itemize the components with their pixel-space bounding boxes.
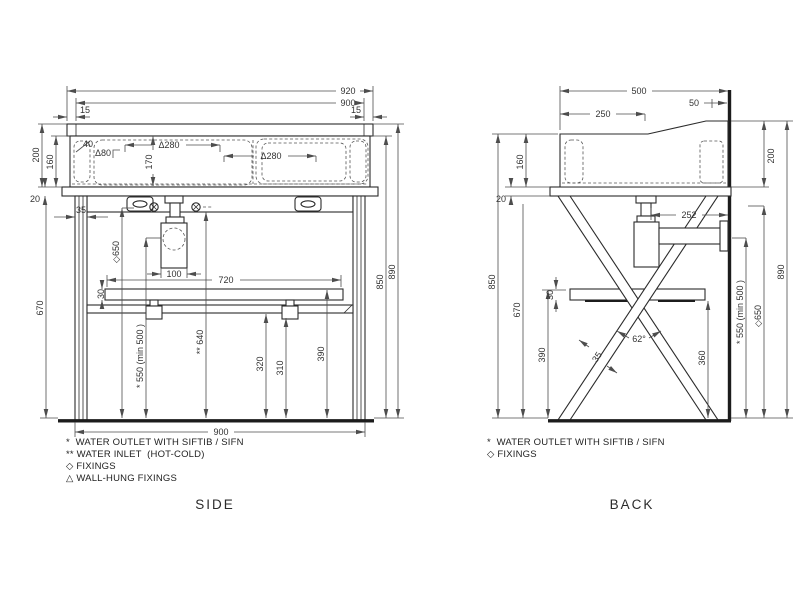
side-washstand-outline [58, 124, 378, 421]
dim-side-bracket-height: 310 [275, 360, 285, 375]
dim-side-fixing-pitch-right: Δ280 [260, 151, 281, 161]
side-note-water-inlet: ** WATER INLET (HOT-COLD) [66, 449, 205, 460]
side-notes: * WATER OUTLET WITH SIFTIB / SIFN ** WAT… [66, 437, 244, 484]
back-note-fixings: ◇ FIXINGS [487, 449, 537, 460]
dim-side-leg-width: 35 [76, 205, 86, 215]
side-worktop [62, 187, 378, 196]
side-view: 920 900 15 15 40 Δ80 Δ280 [30, 86, 404, 512]
back-note-water-outlet: * WATER OUTLET WITH SIFTIB / SIFN [487, 437, 665, 448]
side-lower-rail [87, 300, 353, 319]
dim-back-trap-to-wall: 252 [681, 210, 696, 220]
dim-side-total-height: 890 [387, 264, 397, 279]
dim-back-front-flat: 250 [595, 109, 610, 119]
dim-back-total-height: 890 [776, 264, 786, 279]
washstand-technical-drawing: 920 900 15 15 40 Δ80 Δ280 [0, 0, 800, 600]
dim-side-base-width: 900 [213, 427, 228, 437]
back-view: 500 50 250 160 20 850 670 390 30 [487, 86, 793, 512]
dim-back-top-thickness: 20 [496, 194, 506, 204]
dim-back-height-front: 160 [515, 154, 525, 169]
dim-back-height-back: 200 [766, 148, 776, 163]
back-washstand-outline [548, 90, 731, 421]
dim-side-end-right: 15 [351, 105, 361, 115]
side-shelf [105, 289, 343, 300]
dim-side-rim-height: 850 [375, 274, 385, 289]
dim-side-basin-depth: 170 [144, 154, 154, 169]
dim-side-water-inlet-height: ** 640 [195, 330, 205, 355]
dim-back-water-outlet-height: * 550 (min 500 ) [735, 280, 745, 344]
dim-side-end-left: 15 [80, 105, 90, 115]
dim-side-fixing-pitch-left: Δ280 [158, 140, 179, 150]
dim-back-splash-depth: 50 [689, 98, 699, 108]
dim-back-rim-height: 850 [487, 274, 497, 289]
dim-side-top-thickness: 20 [30, 194, 40, 204]
dim-back-leg-angle: 62° [632, 334, 646, 344]
back-view-label: BACK [610, 497, 655, 512]
side-note-wall-hung-fixings: △ WALL-HUNG FIXINGS [66, 473, 177, 484]
dim-side-water-outlet-height: * 550 (min 500 ) [135, 324, 145, 388]
back-notes: * WATER OUTLET WITH SIFTIB / SIFN ◇ FIXI… [487, 437, 665, 460]
dim-side-shelf-thickness: 30 [96, 289, 106, 299]
back-worktop [550, 187, 731, 196]
dim-side-shelf-width: 720 [218, 275, 233, 285]
back-outlet-pipe [659, 228, 723, 244]
dim-side-corner: 40 [83, 139, 93, 149]
side-note-water-outlet: * WATER OUTLET WITH SIFTIB / SIFN [66, 437, 244, 448]
side-note-fixings: ◇ FIXINGS [66, 461, 116, 472]
dim-back-shelf-height: 390 [537, 347, 547, 362]
dim-back-underside-height: 670 [512, 302, 522, 317]
dim-side-overall-width: 920 [340, 86, 355, 96]
dim-side-outlet-fixing-height: ◇650 [111, 241, 121, 263]
dim-side-shelf-height: 390 [316, 346, 326, 361]
dim-back-shelf-underside-height: 360 [697, 350, 707, 365]
back-wall-flange [720, 221, 728, 251]
dim-back-shelf-thickness: 30 [545, 290, 555, 300]
dim-side-underside-height: 670 [35, 300, 45, 315]
back-basin [560, 121, 728, 187]
dim-back-overall-depth: 500 [631, 86, 646, 96]
dim-side-height-back: 200 [31, 147, 41, 162]
side-view-label: SIDE [195, 497, 235, 512]
back-bottle-trap [634, 196, 728, 267]
dim-side-rail-height: 320 [255, 356, 265, 371]
technical-drawing-page: 920 900 15 15 40 Δ80 Δ280 [0, 0, 800, 600]
dim-side-fixing-inset: Δ80 [95, 148, 111, 158]
dim-side-height-front: 160 [45, 154, 55, 169]
dim-back-outlet-fixing-height: ◇650 [753, 305, 763, 327]
dim-side-trap-width: 100 [166, 269, 181, 279]
